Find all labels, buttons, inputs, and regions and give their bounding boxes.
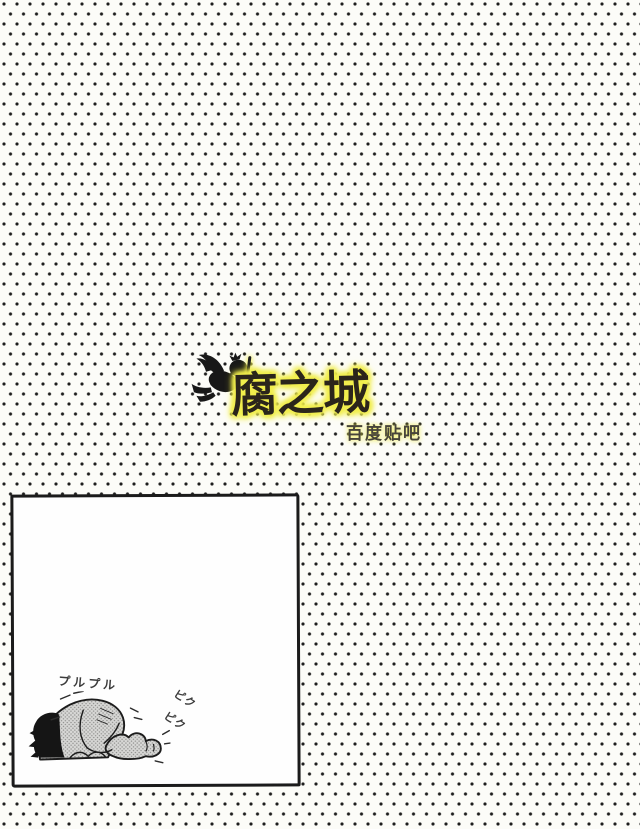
kneeling-figure-illustration xyxy=(28,691,170,777)
logo-title: 腐之城 xyxy=(230,369,369,420)
logo-subtitle: 百度贴吧 xyxy=(346,425,422,444)
scanned-doujinshi-page: 腐之城 百度贴吧 プルプル ピク ピク xyxy=(0,0,640,829)
sfx-twitch-1: ピク xyxy=(171,686,200,712)
comic-panel: プルプル ピク ピク xyxy=(10,493,300,787)
